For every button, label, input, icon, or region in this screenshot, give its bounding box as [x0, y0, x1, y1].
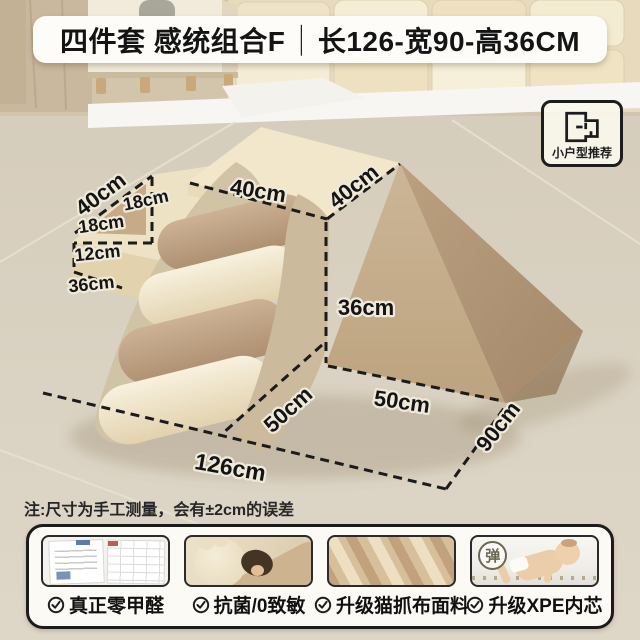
- child-thumbnail: [184, 535, 313, 587]
- banner-separator: ｜: [287, 18, 316, 62]
- bounce-stamp: 弹: [478, 541, 507, 570]
- floor-plan-icon: [561, 109, 603, 145]
- dim-label-wedge-height: 36cm: [338, 295, 394, 320]
- check-circle-icon: [192, 596, 210, 614]
- measurement-note: 注:尺寸为手工测量，会有±2cm的误差: [24, 496, 294, 520]
- feature-xpe-core: 弹 升级XPE内芯: [470, 535, 599, 618]
- features-panel: 真正零甲醛 抗菌/0致敏: [26, 524, 614, 629]
- feature-antibacterial: 抗菌/0致敏: [184, 535, 313, 618]
- title-banner: 四件套 感统组合F ｜ 长126-宽90-高36CM: [33, 16, 607, 63]
- feature-label-text: 抗菌/0致敏: [214, 591, 306, 618]
- feature-label-text: 升级XPE内芯: [488, 591, 602, 618]
- fabric-thumbnail: [327, 535, 456, 587]
- feature-label-text: 真正零甲醛: [69, 591, 164, 618]
- check-circle-icon: [47, 596, 65, 614]
- baby-thumbnail: 弹: [470, 535, 599, 587]
- banner-title-right: 长126-宽90-高36CM: [318, 20, 580, 60]
- check-circle-icon: [314, 596, 332, 614]
- product-infographic: 40cm 18cm 18cm 12cm 36cm 40cm 40cm 36cm …: [0, 0, 640, 640]
- feature-zero-formaldehyde: 真正零甲醛: [41, 535, 170, 618]
- banner-title-left: 四件套 感统组合F: [60, 20, 285, 60]
- feature-label-text: 升级猫抓布面料: [336, 591, 469, 618]
- certificate-thumbnail: [41, 535, 170, 587]
- check-circle-icon: [466, 596, 484, 614]
- badge-label: 小户型推荐: [552, 144, 612, 161]
- small-home-badge: 小户型推荐: [541, 100, 623, 167]
- feature-cat-scratch-fabric: 升级猫抓布面料: [327, 535, 456, 618]
